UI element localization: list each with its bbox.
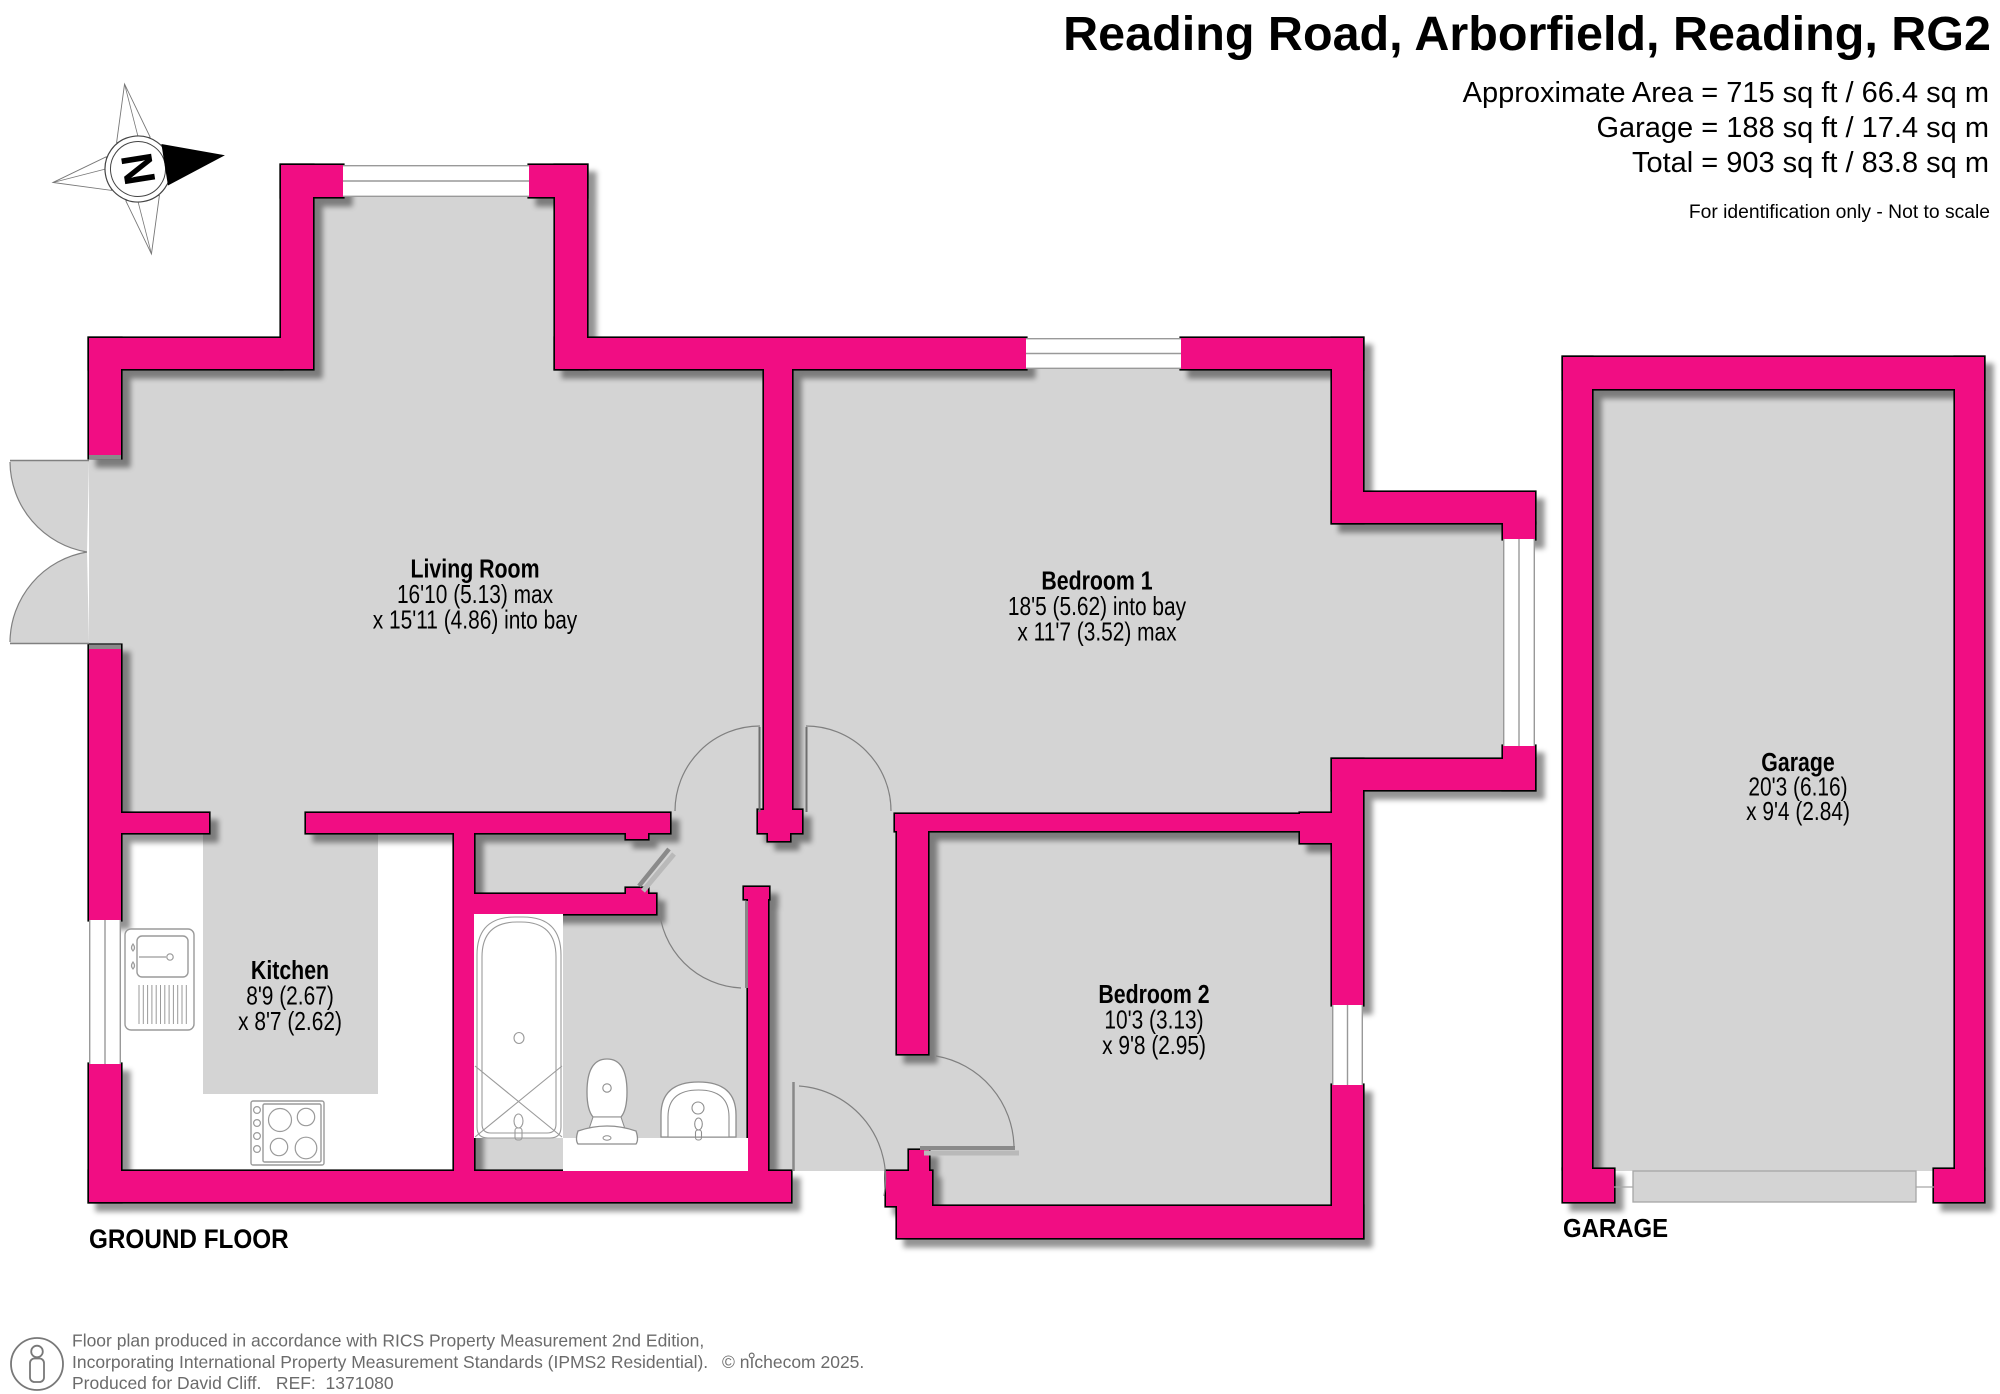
svg-text:GROUND FLOOR: GROUND FLOOR <box>89 1225 289 1254</box>
svg-text:8'9 (2.67): 8'9 (2.67) <box>246 982 334 1010</box>
svg-text:x 8'7 (2.62): x 8'7 (2.62) <box>238 1007 342 1035</box>
svg-text:Total = 903 sq ft / 83.8 sq m: Total = 903 sq ft / 83.8 sq m <box>1632 147 1989 179</box>
svg-text:Approximate Area = 715 sq ft /: Approximate Area = 715 sq ft / 66.4 sq m <box>1463 77 1989 109</box>
svg-text:16'10 (5.13) max: 16'10 (5.13) max <box>397 580 553 608</box>
svg-text:Produced for David Cliff. RE: Produced for David Cliff. REF: 1371080 <box>72 1373 394 1393</box>
svg-text:x 15'11 (4.86) into bay: x 15'11 (4.86) into bay <box>373 606 578 634</box>
svg-text:Floor plan produced in accorda: Floor plan produced in accordance with R… <box>72 1331 704 1351</box>
svg-text:Reading Road, Arborfield, Read: Reading Road, Arborfield, Reading, RG2 <box>1063 7 1991 61</box>
svg-text:© nıchecom 2025.: © nıchecom 2025. <box>722 1352 864 1372</box>
svg-text:Incorporating International Pr: Incorporating International Property Mea… <box>72 1352 708 1372</box>
svg-text:x 11'7 (3.52) max: x 11'7 (3.52) max <box>1017 618 1177 646</box>
svg-text:GARAGE: GARAGE <box>1563 1215 1668 1243</box>
svg-text:For identification only - Not: For identification only - Not to scale <box>1689 202 1990 223</box>
svg-text:10'3 (3.13): 10'3 (3.13) <box>1104 1006 1203 1034</box>
svg-text:x 9'4 (2.84): x 9'4 (2.84) <box>1746 797 1850 825</box>
svg-text:18'5 (5.62) into bay: 18'5 (5.62) into bay <box>1008 592 1187 620</box>
svg-text:x 9'8 (2.95): x 9'8 (2.95) <box>1102 1031 1206 1059</box>
svg-text:Garage = 188 sq ft / 17.4 sq m: Garage = 188 sq ft / 17.4 sq m <box>1596 112 1989 144</box>
